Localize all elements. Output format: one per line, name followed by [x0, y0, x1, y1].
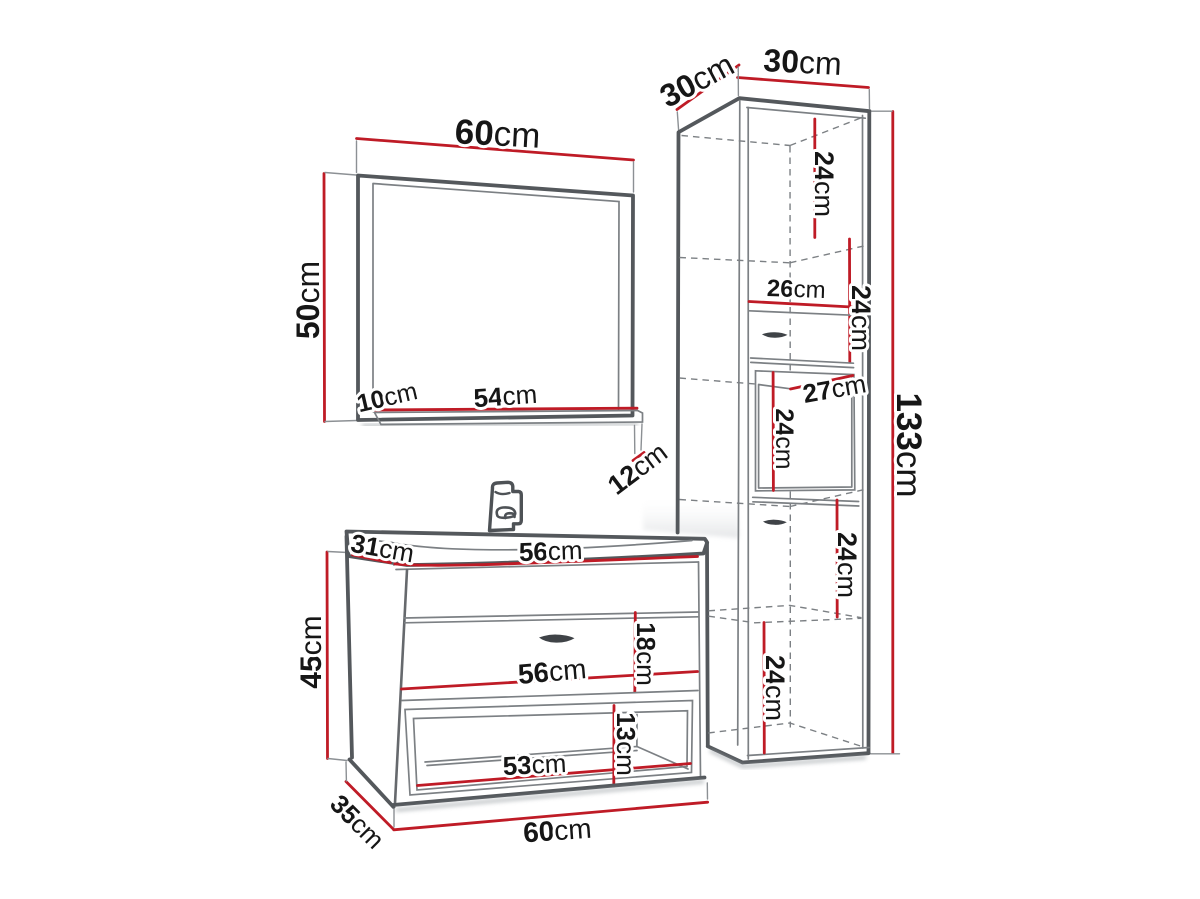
svg-text:24cm: 24cm — [846, 285, 876, 351]
svg-text:24cm: 24cm — [832, 532, 862, 598]
svg-text:18cm: 18cm — [631, 622, 661, 686]
svg-text:30cm: 30cm — [763, 42, 843, 82]
svg-text:12cm: 12cm — [602, 437, 673, 501]
svg-text:133cm: 133cm — [889, 392, 928, 497]
svg-text:35cm: 35cm — [324, 789, 390, 855]
svg-text:24cm: 24cm — [760, 655, 790, 721]
svg-text:45cm: 45cm — [295, 615, 328, 688]
svg-text:24cm: 24cm — [809, 151, 839, 217]
svg-text:24cm: 24cm — [770, 408, 798, 469]
svg-text:56cm: 56cm — [517, 653, 588, 690]
svg-text:56cm: 56cm — [518, 535, 583, 567]
svg-text:26cm: 26cm — [766, 275, 826, 304]
svg-text:53cm: 53cm — [502, 748, 567, 781]
svg-text:13cm: 13cm — [611, 712, 641, 776]
svg-text:50cm: 50cm — [290, 261, 326, 339]
svg-text:60cm: 60cm — [454, 112, 542, 155]
svg-text:27cm: 27cm — [801, 368, 869, 409]
svg-text:60cm: 60cm — [522, 813, 592, 849]
svg-text:54cm: 54cm — [473, 379, 539, 413]
